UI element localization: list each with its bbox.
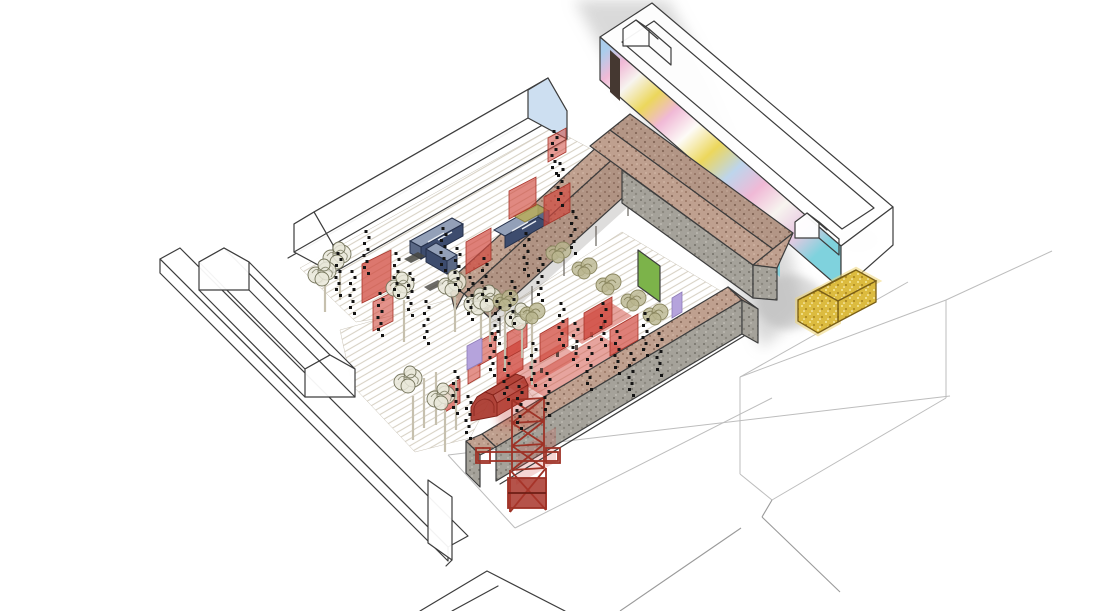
wing-cross-end bbox=[753, 265, 777, 300]
axonometric-illustration bbox=[0, 0, 1100, 611]
mural-door bbox=[610, 50, 620, 101]
